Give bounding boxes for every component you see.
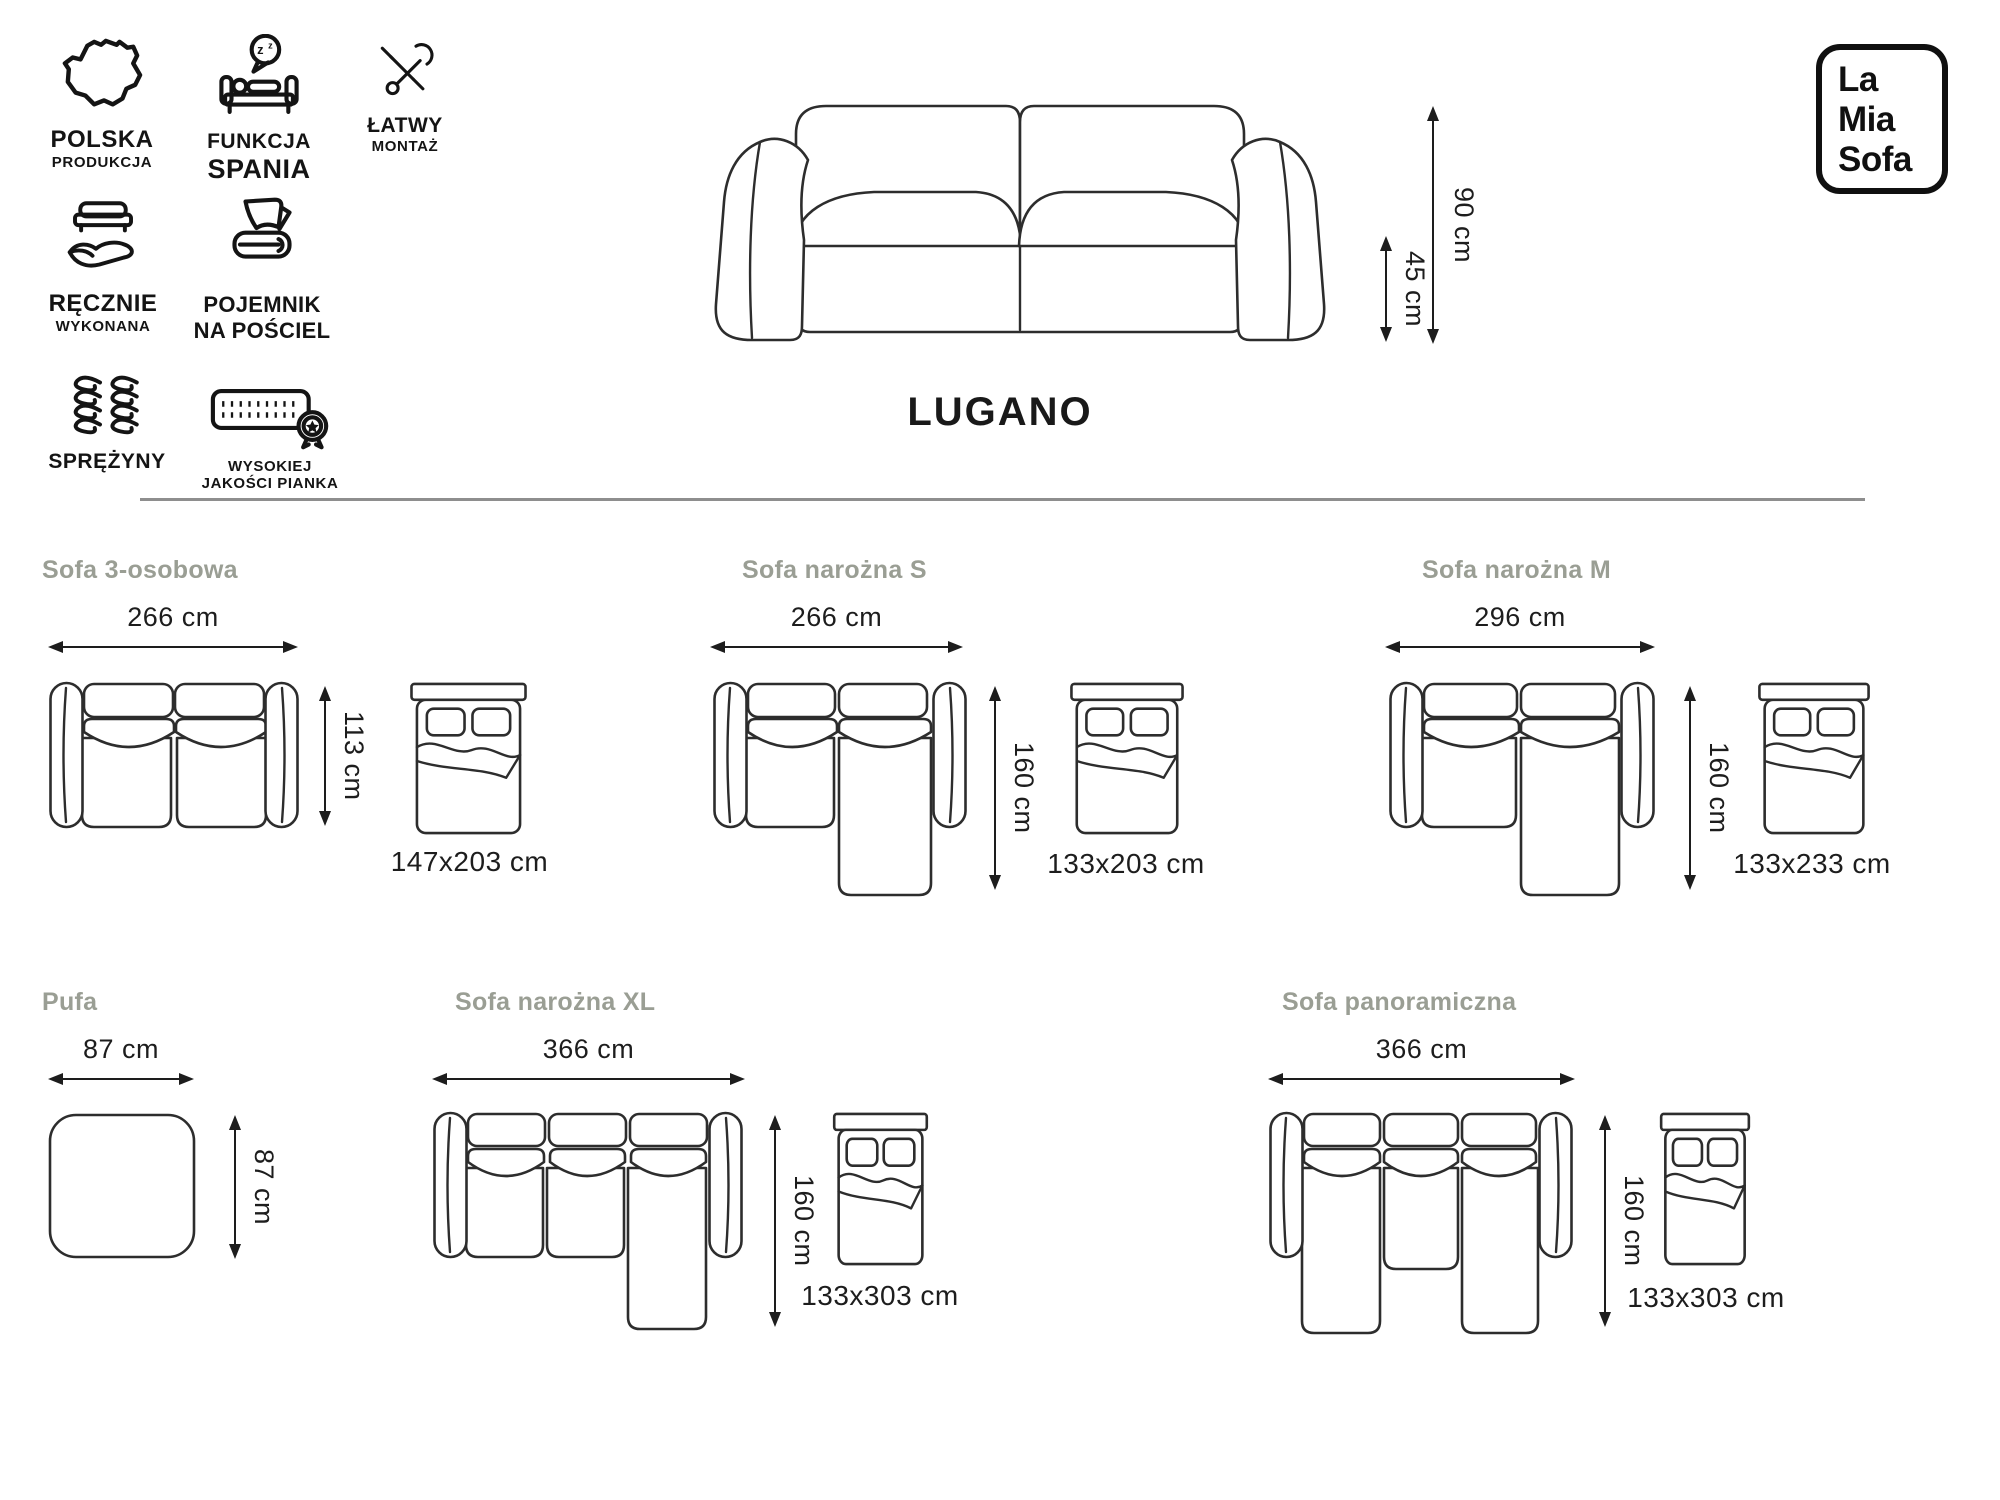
pouf-top-view xyxy=(47,1112,197,1260)
bed-size-label: 147x203 cm xyxy=(382,846,557,878)
feature-label: POLSKA xyxy=(38,126,166,154)
width-dimension-arrow xyxy=(1268,1072,1575,1086)
feature-label: WYSOKIEJ xyxy=(184,458,356,475)
bed-icon xyxy=(833,1112,928,1267)
width-dimension-label: 266 cm xyxy=(710,602,963,633)
depth-dimension-arrow xyxy=(988,686,1002,890)
depth-dimension-arrow xyxy=(228,1115,242,1259)
depth-dimension-label: 113 cm xyxy=(338,686,369,826)
bed-size-label: 133x203 cm xyxy=(1046,848,1206,880)
seat-height-arrow xyxy=(1379,236,1393,342)
width-dimension-arrow xyxy=(48,640,298,654)
width-dimension-label: 366 cm xyxy=(432,1034,745,1065)
bed-size-label: 133x303 cm xyxy=(1626,1282,1786,1314)
feature-label: SPRĘŻYNY xyxy=(40,450,174,474)
variant-title: Sofa narożna S xyxy=(742,556,927,585)
feature-polska-produkcja: POLSKA PRODUKCJA xyxy=(38,36,166,171)
width-dimension-arrow xyxy=(432,1072,745,1086)
seat-height-label: 45 cm xyxy=(1399,236,1430,342)
handmade-icon xyxy=(57,198,149,282)
depth-dimension-arrow xyxy=(1683,686,1697,890)
feature-sublabel: NA POŚCIEL xyxy=(186,318,338,344)
brand-logo: La Mia Sofa xyxy=(1816,44,1948,194)
depth-dimension-label: 160 cm xyxy=(1008,686,1039,890)
foam-quality-icon xyxy=(206,380,334,450)
sofa-top-view xyxy=(48,680,300,830)
tools-icon xyxy=(371,40,439,106)
width-dimension-arrow xyxy=(710,640,963,654)
depth-dimension-label: 160 cm xyxy=(1703,686,1734,890)
bed-icon xyxy=(1070,682,1184,836)
variant-sofa-narozna-s: Sofa narożna S 266 cm 160 cm 133x203 cm xyxy=(710,556,1230,906)
bedding-storage-icon xyxy=(216,196,308,284)
depth-dimension-label: 87 cm xyxy=(248,1115,279,1259)
depth-dimension-arrow xyxy=(768,1115,782,1327)
width-dimension-label: 366 cm xyxy=(1268,1034,1575,1065)
poland-map-icon xyxy=(53,36,151,118)
variant-sofa-panoramiczna: Sofa panoramiczna 366 cm 160 cm xyxy=(1268,988,1813,1338)
sofa-top-view xyxy=(1268,1110,1574,1336)
springs-icon xyxy=(62,372,152,442)
total-height-label: 90 cm xyxy=(1448,106,1479,344)
feature-label: RĘCZNIE xyxy=(36,290,170,318)
feature-sublabel: PRODUKCJA xyxy=(38,154,166,171)
variant-title: Sofa narożna XL xyxy=(455,988,655,1017)
feature-sprezyny: SPRĘŻYNY xyxy=(40,372,174,474)
width-dimension-label: 266 cm xyxy=(48,602,298,633)
feature-sublabel: SPANIA xyxy=(186,154,332,185)
bed-icon xyxy=(1758,682,1870,836)
brand-logo-line: La xyxy=(1838,60,1942,100)
bed-icon xyxy=(410,682,527,836)
bed-icon xyxy=(1660,1112,1750,1267)
hero-sofa-front-view xyxy=(690,70,1350,350)
brand-logo-line: Sofa xyxy=(1838,140,1942,180)
brand-logo-line: Mia xyxy=(1838,100,1942,140)
feature-label: POJEMNIK xyxy=(186,292,338,318)
bed-size-label: 133x303 cm xyxy=(800,1280,960,1312)
depth-dimension-arrow xyxy=(1598,1115,1612,1327)
sofa-top-view xyxy=(432,1110,744,1332)
product-dimension-sheet: POLSKA PRODUKCJA z z FUNKCJA SPANIA ŁATW xyxy=(0,0,2000,1500)
feature-sublabel: WYKONANA xyxy=(36,318,170,335)
bed-size-label: 133x233 cm xyxy=(1732,848,1892,880)
variant-sofa-narozna-m: Sofa narożna M 296 cm 160 cm 133x233 cm xyxy=(1385,556,1930,906)
depth-dimension-arrow xyxy=(318,686,332,826)
feature-wysokiej-jakosci-pianka: WYSOKIEJ JAKOŚCI PIANKA xyxy=(184,380,356,493)
variant-title: Sofa narożna M xyxy=(1422,556,1611,585)
feature-pojemnik-na-posciel: POJEMNIK NA POŚCIEL xyxy=(186,196,338,343)
svg-text:z: z xyxy=(268,41,273,51)
variant-title: Pufa xyxy=(42,988,97,1017)
variant-sofa-narozna-xl: Sofa narożna XL 366 cm 160 cm xyxy=(432,988,977,1338)
width-dimension-arrow xyxy=(1385,640,1655,654)
variant-sofa-3-osobowa: Sofa 3-osobowa 266 cm 113 cm 147x203 cm xyxy=(42,556,587,906)
feature-recznie-wykonana: RĘCZNIE WYKONANA xyxy=(36,198,170,335)
feature-sublabel: MONTAŻ xyxy=(346,138,464,155)
variant-title: Sofa panoramiczna xyxy=(1282,988,1516,1017)
variant-pufa: Pufa 87 cm 87 cm xyxy=(42,988,342,1318)
feature-latwy-montaz: ŁATWY MONTAŻ xyxy=(346,40,464,156)
svg-text:z: z xyxy=(257,42,263,57)
feature-sublabel: JAKOŚCI PIANKA xyxy=(184,475,356,492)
feature-label: ŁATWY xyxy=(346,114,464,138)
variant-title: Sofa 3-osobowa xyxy=(42,556,238,585)
feature-funkcja-spania: z z FUNKCJA SPANIA xyxy=(186,34,332,186)
sofa-top-view xyxy=(1388,680,1656,898)
product-title: LUGANO xyxy=(850,390,1150,435)
width-dimension-label: 296 cm xyxy=(1385,602,1655,633)
section-divider xyxy=(140,498,1865,501)
width-dimension-label: 87 cm xyxy=(48,1034,194,1065)
sofa-top-view xyxy=(712,680,968,898)
width-dimension-arrow xyxy=(48,1072,194,1086)
feature-label: FUNKCJA xyxy=(186,130,332,154)
sleep-function-icon: z z xyxy=(211,34,307,122)
